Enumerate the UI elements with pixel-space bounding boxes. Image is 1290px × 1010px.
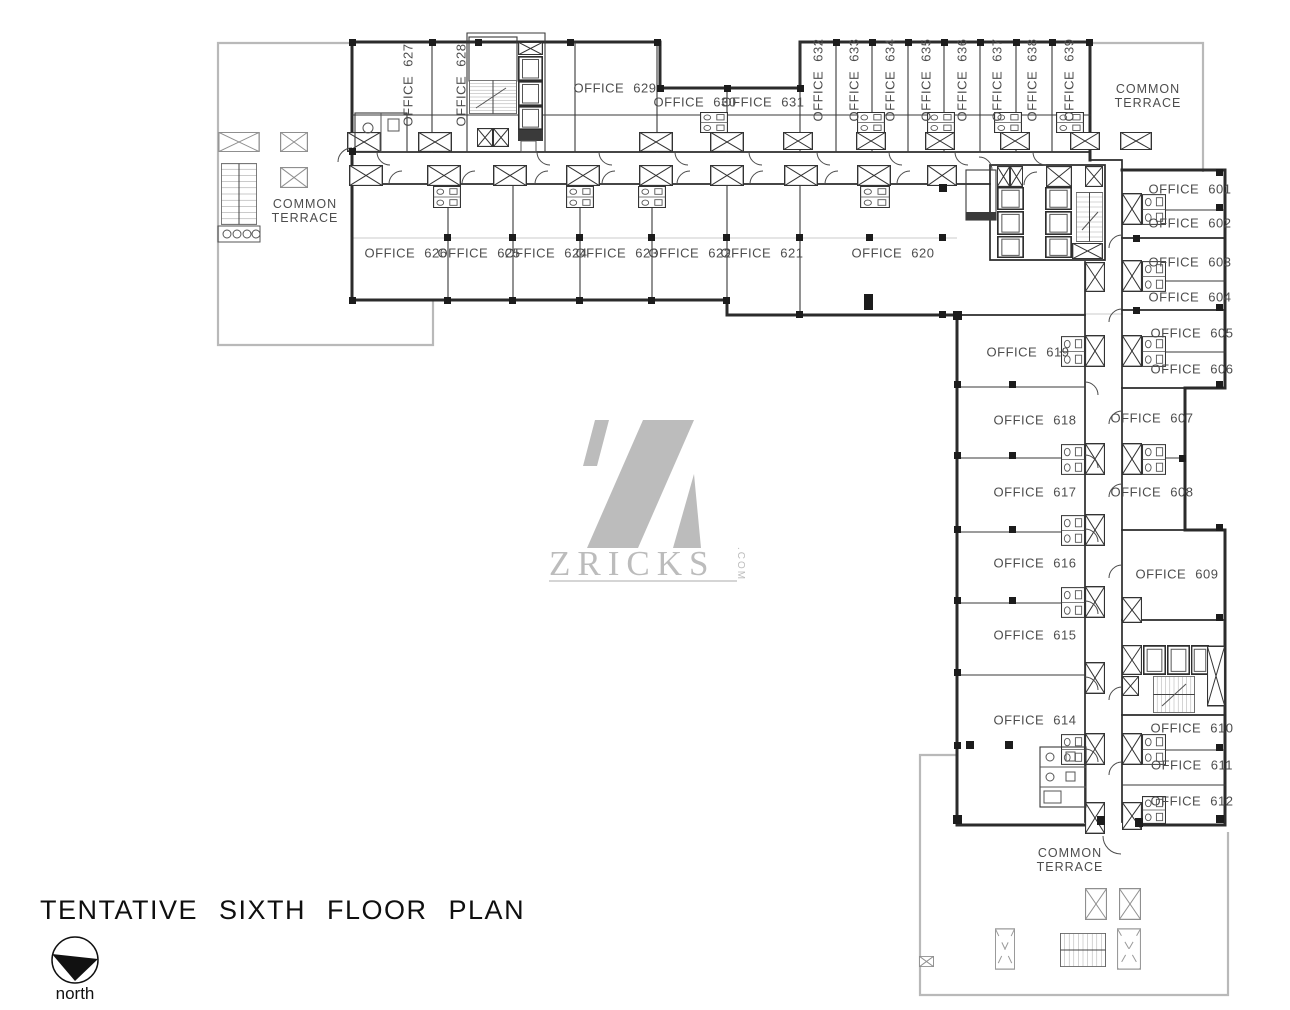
elevator-cell [998,212,1023,235]
elevator-cell [519,107,543,130]
office-618-label: OFFICE 618 [994,413,1077,428]
office-631-label: OFFICE 631 [722,95,805,110]
shaft-box [1085,166,1102,186]
elevator-cell [1192,646,1209,674]
elevator-cell [519,82,543,106]
office-634-label: OFFICE 634 [883,39,898,122]
elevator-cell [1168,646,1190,674]
shaft-box [1047,166,1072,186]
office-601-label: OFFICE 601 [1149,182,1232,197]
corridor-shaft-boxes [348,132,1152,185]
shaft-box [1085,263,1104,292]
terrace-label-bottom: COMMON TERRACE [1037,846,1104,874]
skylight-box [1085,889,1106,920]
zricks-logo-icon [583,420,701,548]
shaft-box [477,128,492,146]
north-label: north [56,984,95,1003]
svg-text:COMMON: COMMON [1038,846,1102,860]
office-620-label: OFFICE 620 [852,246,935,261]
skylight-box [219,132,259,151]
skylight-box [281,167,308,187]
elevator-cell [519,57,543,81]
elevator-cell [998,237,1023,258]
bottom-terrace-features [919,889,1140,970]
office-626-label: OFFICE 626 [365,246,448,261]
shaft-box [519,42,543,54]
terrace-staircase [1060,933,1105,966]
elevator-cell [1046,237,1071,258]
office-617-label: OFFICE 617 [994,485,1077,500]
staircase [1076,193,1102,242]
louver-grill [218,226,260,242]
floor-plan-canvas: OFFICE 626 OFFICE 625 OFFICE 624 OFFICE … [0,0,1290,1010]
svg-text:TERRACE: TERRACE [272,211,339,225]
office-612-label: OFFICE 612 [1151,794,1234,809]
shaft-box-dashed [995,929,1014,969]
shaft-box [1010,166,1022,186]
office-629-label: OFFICE 629 [574,81,657,96]
office-619-label: OFFICE 619 [987,345,1070,360]
elevator-cell [1144,646,1166,674]
office-614-label: OFFICE 614 [994,713,1077,728]
watermark-brand: ZRICKS [549,544,715,583]
floor-plan-page: OFFICE 626 OFFICE 625 OFFICE 624 OFFICE … [0,0,1290,1010]
page-title: TENTATIVE SIXTH FLOOR PLAN [40,895,525,925]
svg-text:COMMON: COMMON [273,197,337,211]
office-623-label: OFFICE 623 [576,246,659,261]
south-core [1122,646,1224,713]
junction-core [966,166,1105,291]
office-605-label: OFFICE 605 [1151,326,1234,341]
office-606-label: OFFICE 606 [1151,362,1234,377]
elevator-cell [998,188,1023,210]
office-610-label: OFFICE 610 [1151,721,1234,736]
shaft-box-dashed [1117,929,1140,969]
office-621-label: OFFICE 621 [721,246,804,261]
structural-columns [349,39,1224,827]
office-633-label: OFFICE 633 [847,39,862,122]
office-622-label: OFFICE 622 [649,246,732,261]
terrace-label-left: COMMON TERRACE [272,197,339,225]
office-608-label: OFFICE 608 [1111,485,1194,500]
office-615-label: OFFICE 615 [994,628,1077,643]
office-639-label: OFFICE 639 [1062,39,1077,122]
office-632-label: OFFICE 632 [811,39,826,122]
north-indicator: north [52,937,98,1003]
skylight-box [919,956,933,967]
skylight-box [281,132,308,151]
watermark-tld: .COM [735,547,746,581]
shaft-box [1122,646,1141,675]
office-637-label: OFFICE 637 [990,39,1005,122]
elevator-cell [1046,212,1071,235]
svg-text:TERRACE: TERRACE [1037,860,1104,874]
shaft-box [997,166,1009,186]
shaft-box [1073,243,1103,258]
office-636-label: OFFICE 636 [955,39,970,122]
office-603-label: OFFICE 603 [1149,255,1232,270]
office-627-label: OFFICE 627 [401,44,416,127]
left-terrace-features [218,132,307,242]
office-604-label: OFFICE 604 [1149,290,1232,305]
shaft-box [1122,676,1138,695]
zricks-watermark: ZRICKS .COM [549,420,746,583]
elevator-cell [1046,188,1071,210]
svg-text:TERRACE: TERRACE [1115,96,1182,110]
terrace-label-top-right: COMMON TERRACE [1115,82,1182,110]
shaft-box [1207,646,1224,706]
office-616-label: OFFICE 616 [994,556,1077,571]
office-611-label: OFFICE 611 [1151,758,1233,773]
office-635-label: OFFICE 635 [919,39,934,122]
office-638-label: OFFICE 638 [1025,39,1040,122]
svg-text:COMMON: COMMON [1116,82,1180,96]
building-walls [352,33,1225,825]
office-628-label: OFFICE 628 [454,44,469,127]
skylight-box [1119,889,1140,920]
office-602-label: OFFICE 602 [1149,216,1232,231]
terrace-staircase [221,164,256,225]
shaft-box [493,128,508,146]
office-609-label: OFFICE 609 [1136,567,1219,582]
office-607-label: OFFICE 607 [1111,411,1194,426]
north-core [469,37,543,152]
